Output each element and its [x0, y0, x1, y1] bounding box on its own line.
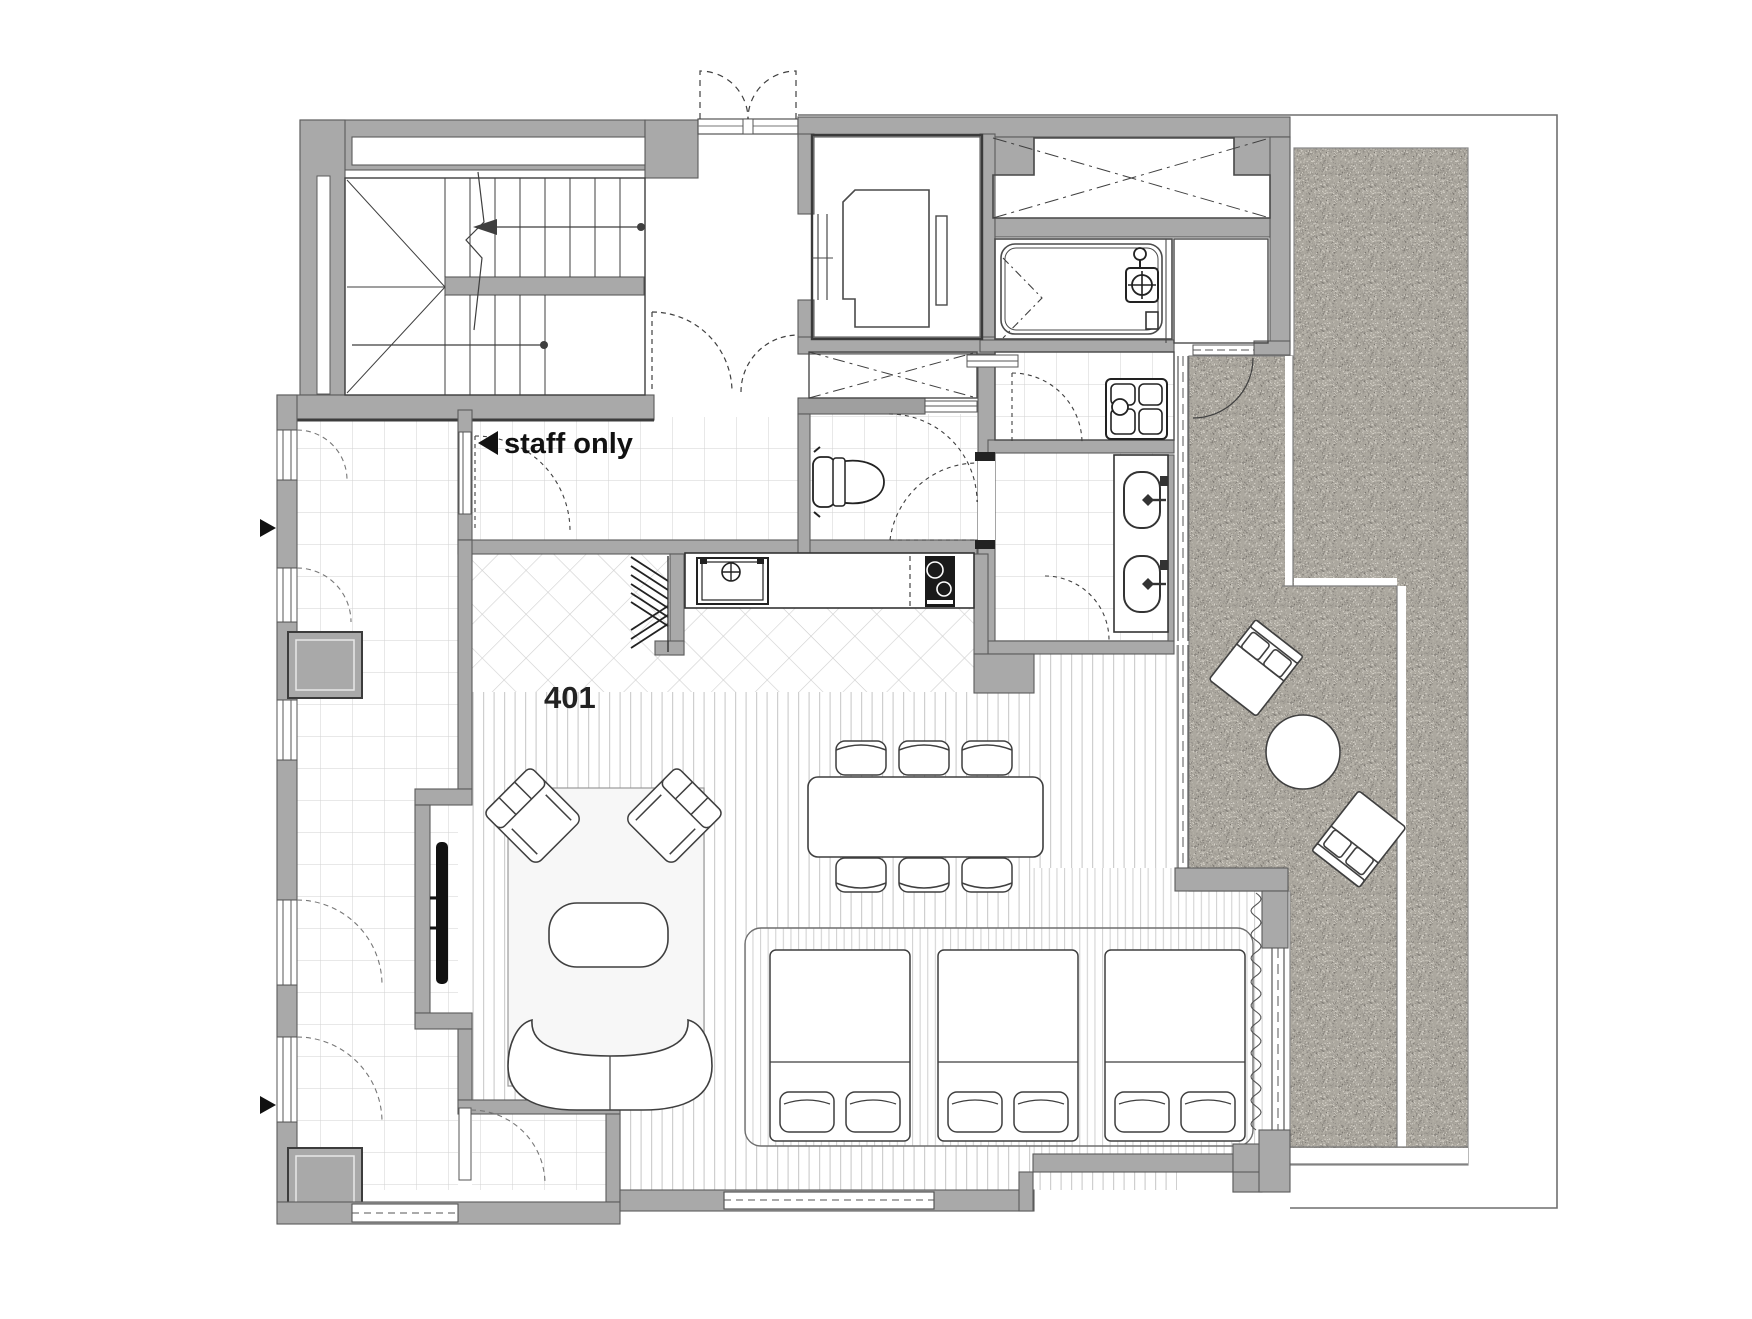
svg-text:401: 401: [544, 680, 596, 715]
svg-text:staff only: staff only: [504, 428, 633, 460]
